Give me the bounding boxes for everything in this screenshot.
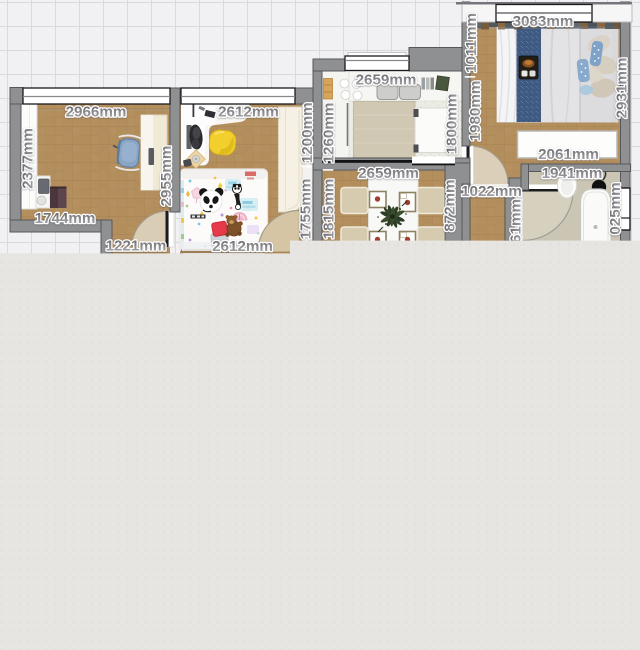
svg-text:2377mm: 2377mm [20, 128, 37, 189]
svg-text:2612mm: 2612mm [212, 238, 273, 255]
svg-text:1022mm: 1022mm [461, 183, 522, 200]
svg-text:1200mm: 1200mm [299, 102, 316, 163]
svg-text:1815mm: 1815mm [320, 179, 337, 240]
svg-text:025mm: 025mm [607, 182, 624, 234]
svg-text:1941mm: 1941mm [542, 165, 603, 182]
svg-text:1011mm: 1011mm [463, 13, 480, 73]
svg-text:2659mm: 2659mm [356, 71, 417, 88]
svg-text:2061mm: 2061mm [538, 146, 599, 163]
svg-text:3083mm: 3083mm [513, 13, 574, 30]
svg-text:2955mm: 2955mm [158, 146, 175, 207]
svg-text:1260mm: 1260mm [320, 103, 337, 164]
svg-text:1800mm: 1800mm [443, 94, 460, 155]
svg-text:2612mm: 2612mm [218, 103, 279, 120]
svg-text:2659mm: 2659mm [358, 165, 419, 182]
svg-text:1221mm: 1221mm [106, 237, 167, 254]
svg-text:1980mm: 1980mm [467, 81, 484, 142]
svg-text:1755mm: 1755mm [297, 179, 314, 240]
svg-text:872mm: 872mm [442, 179, 459, 231]
svg-text:2966mm: 2966mm [66, 103, 127, 120]
svg-text:1744mm: 1744mm [35, 210, 96, 227]
svg-text:2931mm: 2931mm [613, 58, 630, 119]
svg-text:61mm: 61mm [507, 199, 524, 243]
